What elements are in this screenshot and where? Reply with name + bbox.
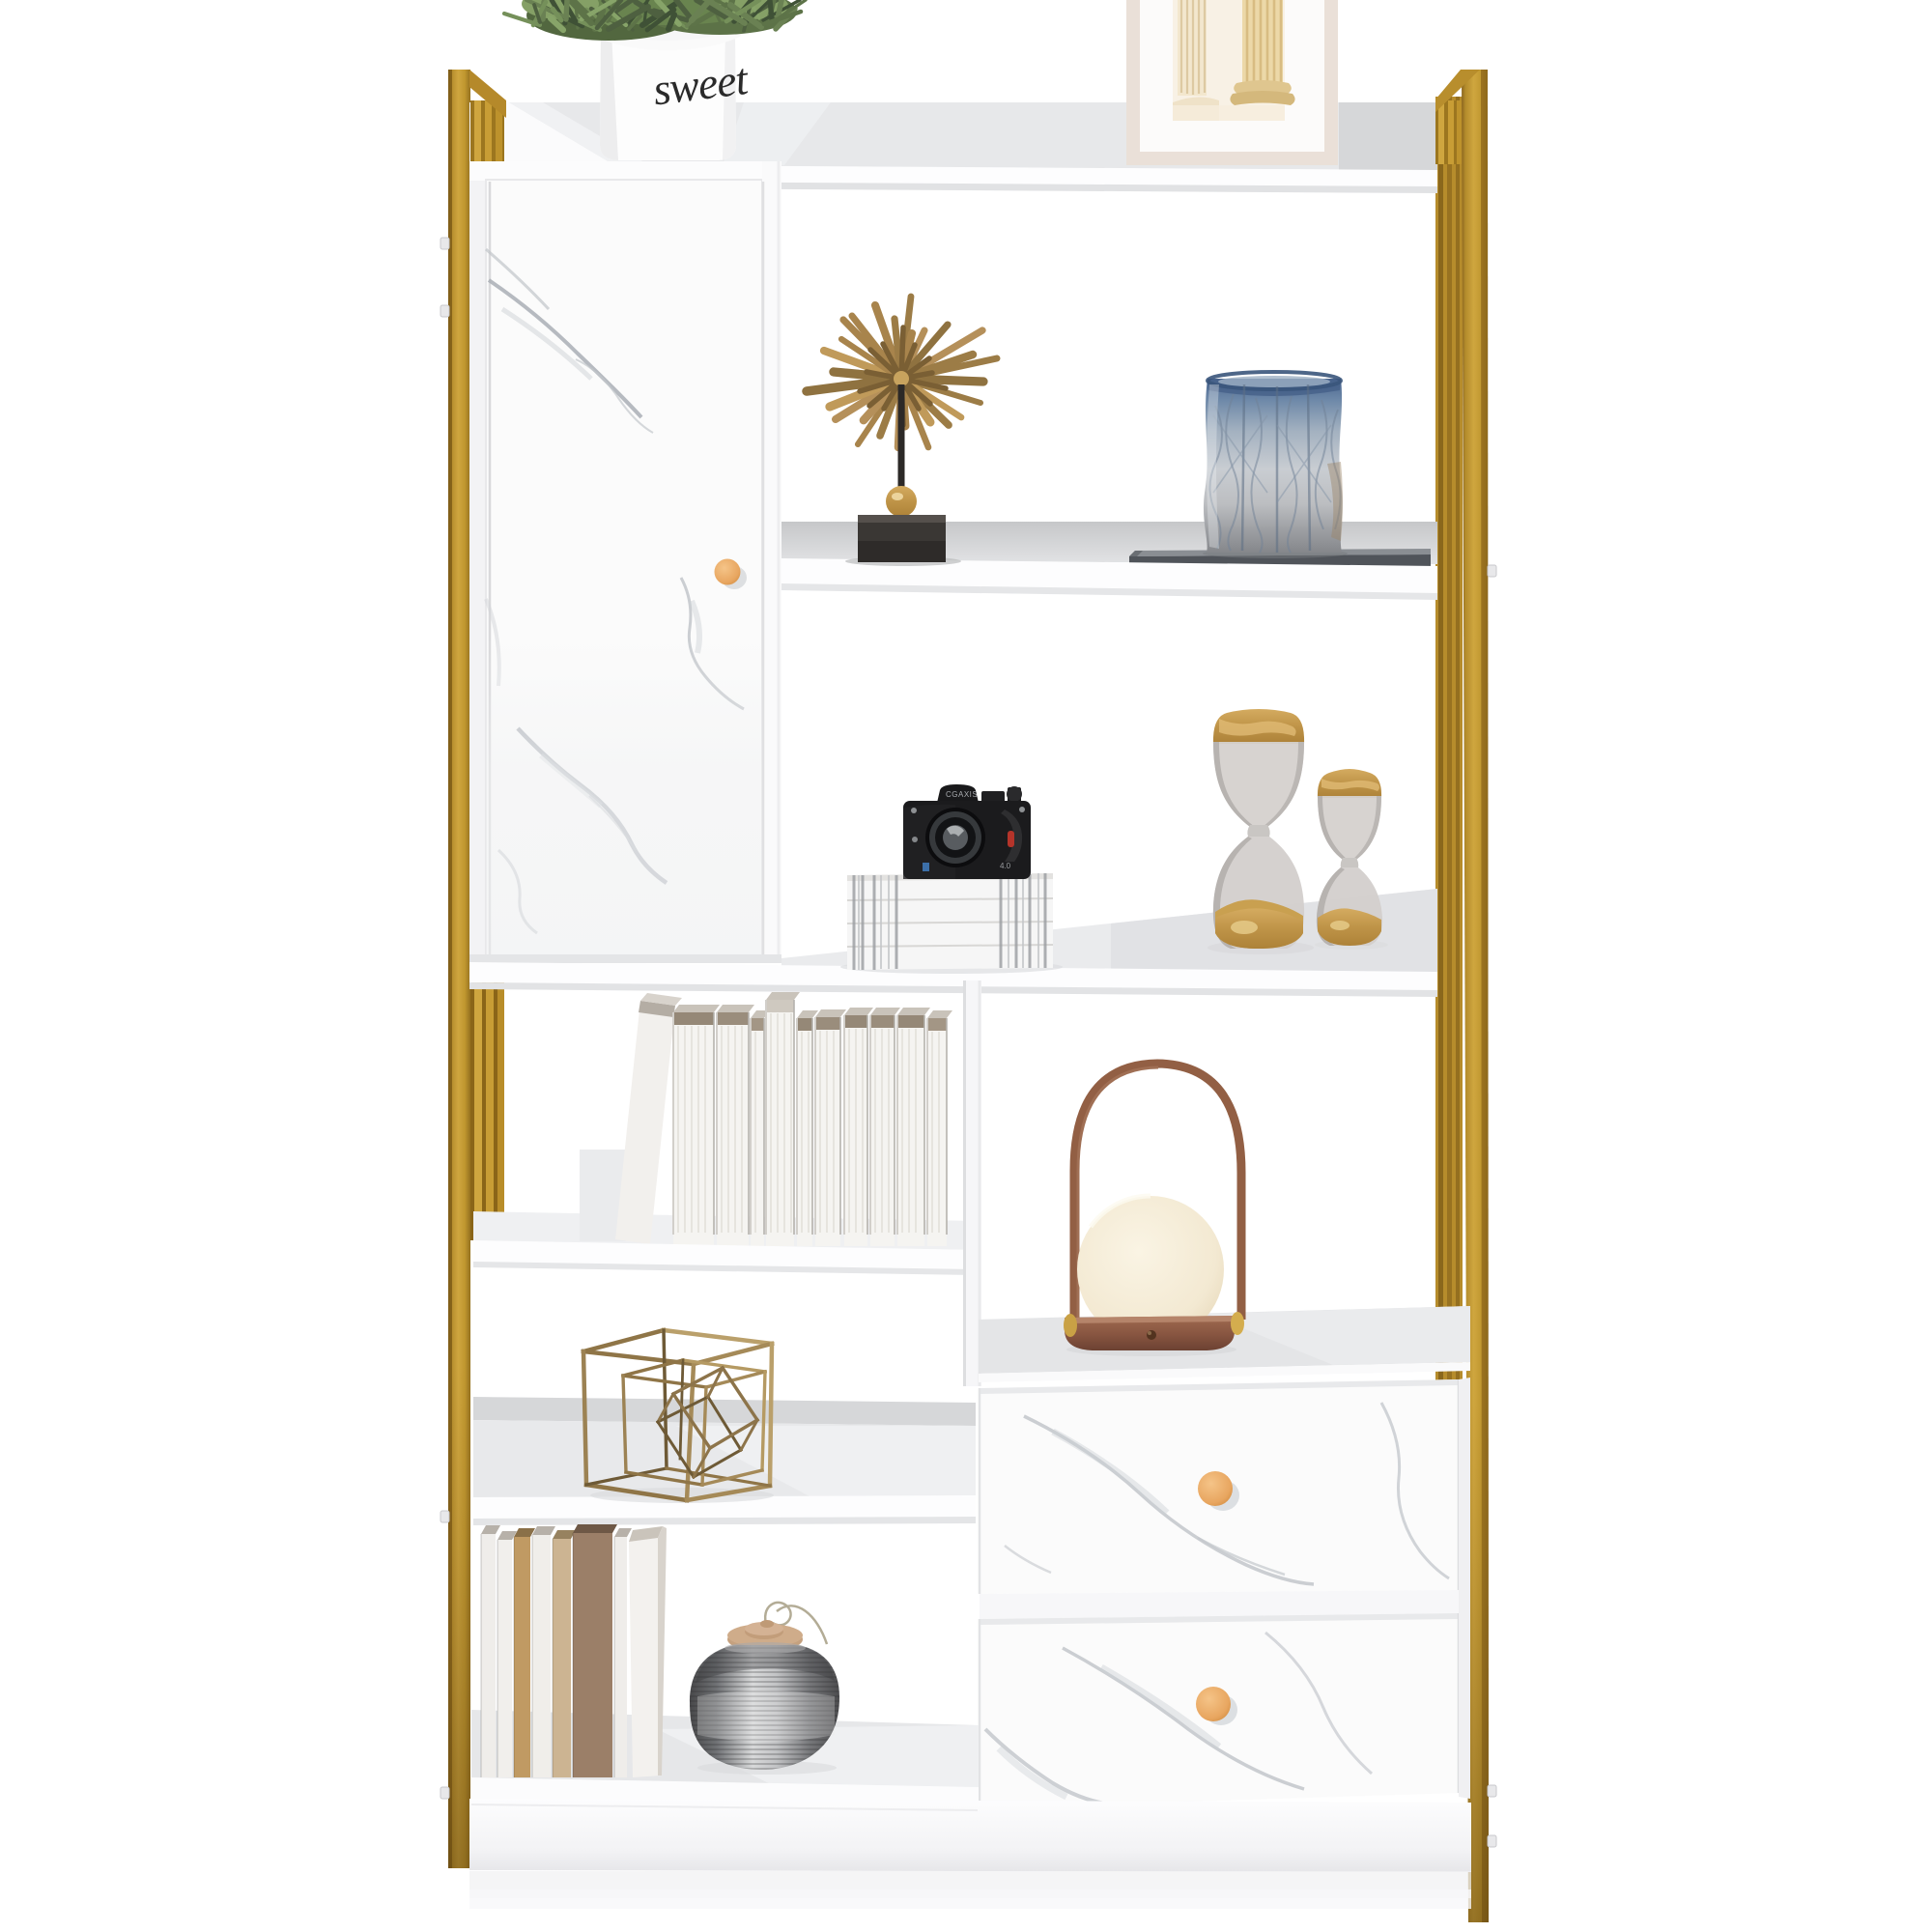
svg-text:4.0: 4.0 [1000,862,1011,870]
svg-text:CGAXIS: CGAXIS [946,790,978,799]
